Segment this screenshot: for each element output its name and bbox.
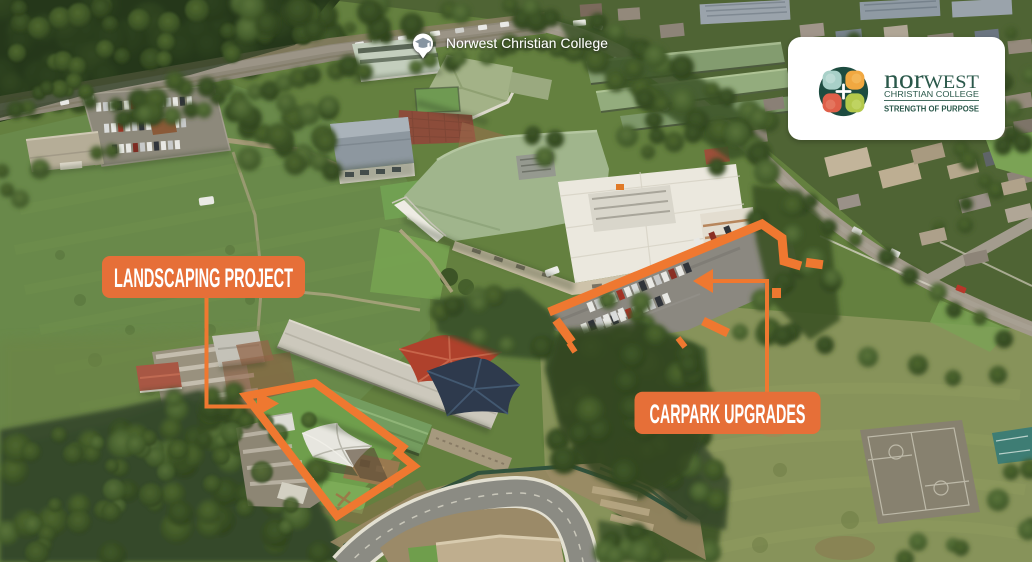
svg-text:CHRISTIAN COLLEGE: CHRISTIAN COLLEGE xyxy=(884,89,979,99)
svg-text:STRENGTH OF PURPOSE: STRENGTH OF PURPOSE xyxy=(884,105,979,114)
svg-text:CARPARK UPGRADES: CARPARK UPGRADES xyxy=(650,399,806,429)
svg-text:Norwest Christian College: Norwest Christian College xyxy=(446,36,608,51)
svg-text:LANDSCAPING PROJECT: LANDSCAPING PROJECT xyxy=(114,263,293,293)
